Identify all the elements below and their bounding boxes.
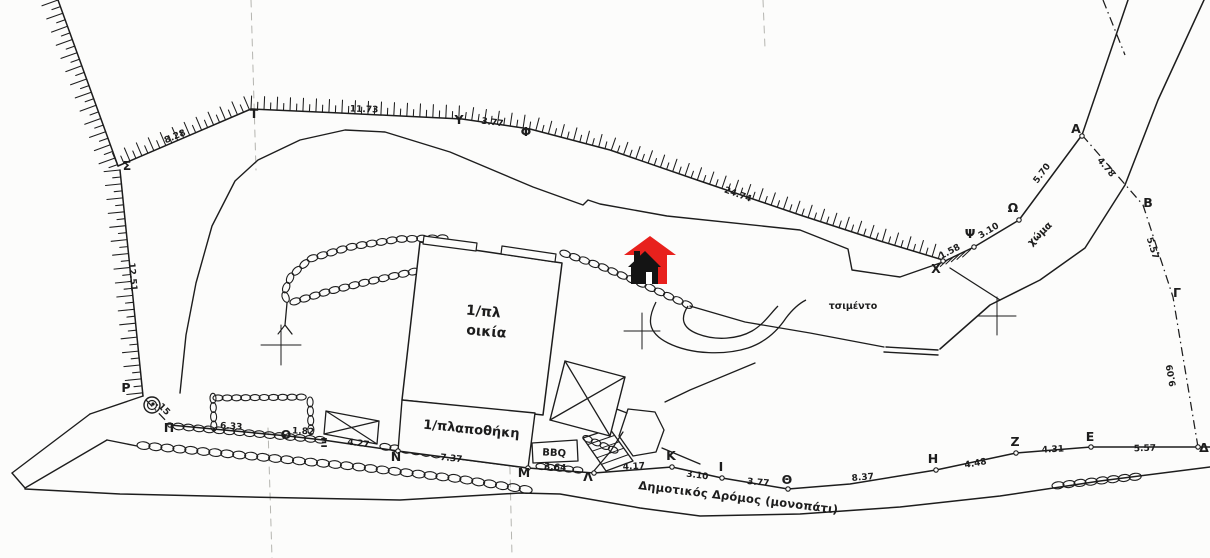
measurement-label: 4.27 xyxy=(347,438,370,451)
house-location-marker xyxy=(624,236,676,284)
measurement-label: 3.64 xyxy=(544,462,567,474)
area-label-soil: χώμα xyxy=(1025,219,1055,248)
point-label-Λ: Λ xyxy=(583,469,593,484)
point-label-Η: Η xyxy=(928,451,938,466)
plot-and-terrain-lines xyxy=(12,0,1210,516)
point-label-Σ: Σ xyxy=(123,158,132,173)
measurement-label: 1.82 xyxy=(292,426,315,437)
point-label-Φ: Φ xyxy=(521,124,532,139)
point-label-Ψ: Ψ xyxy=(965,226,976,241)
labels-layer: ΑΒΓΔΕΖΗΘΙΚΛΜΝΞΟΠΡΣΤΥΦΧΨΩ8.2811.733.7724.… xyxy=(121,105,1209,517)
point-label-Χ: Χ xyxy=(931,261,941,276)
measurement-label: 4.78 xyxy=(1095,156,1117,179)
point-label-Θ: Θ xyxy=(782,472,793,487)
point-label-Ξ: Ξ xyxy=(320,435,328,450)
point-label-Ρ: Ρ xyxy=(121,380,130,395)
building-label-storage-storeys: 1/πλ xyxy=(423,418,456,436)
road-name-label: Δημοτικός Δρόμος (μονοπάτι) xyxy=(638,478,839,516)
point-label-Ν: Ν xyxy=(391,449,401,464)
measurement-label: 6.33 xyxy=(220,421,243,433)
measurement-label: 3.77 xyxy=(481,117,504,130)
point-label-Π: Π xyxy=(164,420,174,435)
dash-dot-property-boundary xyxy=(146,0,1198,447)
point-label-Τ: Τ xyxy=(250,106,259,121)
point-label-Γ: Γ xyxy=(1173,285,1181,300)
point-label-Ω: Ω xyxy=(1008,200,1019,215)
point-label-Μ: Μ xyxy=(518,465,530,480)
measurement-label: 4.31 xyxy=(1042,444,1065,455)
measurement-label: 4.48 xyxy=(964,457,988,471)
point-label-Ζ: Ζ xyxy=(1010,434,1019,449)
measurement-label: 12.51 xyxy=(126,262,138,291)
marker-house-door xyxy=(646,272,652,284)
point-label-Δ: Δ xyxy=(1199,440,1209,455)
building-label-bbq: BBQ xyxy=(542,447,566,459)
measurement-label: 7.37 xyxy=(440,453,463,465)
point-label-Ο: Ο xyxy=(281,427,292,442)
measurement-label: 3.10 xyxy=(686,470,709,483)
building-label-house-storeys: 1/πλ xyxy=(465,303,501,322)
measurement-label: 5.57 xyxy=(1144,236,1160,260)
area-label-cement: τσιμέντο xyxy=(829,301,878,312)
point-label-Α: Α xyxy=(1071,121,1081,136)
scanned-survey-plan-page: ΑΒΓΔΕΖΗΘΙΚΛΜΝΞΟΠΡΣΤΥΦΧΨΩ8.2811.733.7724.… xyxy=(0,0,1210,558)
point-label-Κ: Κ xyxy=(666,448,677,463)
point-label-Υ: Υ xyxy=(453,112,464,127)
measurement-label: 11.73 xyxy=(350,105,379,116)
measurement-label: 5.57 xyxy=(1134,444,1157,455)
measurement-label: 8.28 xyxy=(163,128,187,146)
measurement-label: 4.17 xyxy=(623,461,646,472)
measurement-label: 9.09 xyxy=(1165,364,1179,388)
measurement-label: 3.77 xyxy=(747,477,770,489)
point-label-Ι: Ι xyxy=(719,459,724,474)
survey-plan-drawing: ΑΒΓΔΕΖΗΘΙΚΛΜΝΞΟΠΡΣΤΥΦΧΨΩ8.2811.733.7724.… xyxy=(0,0,1210,558)
point-label-Ε: Ε xyxy=(1086,429,1095,444)
measurement-label: 5.70 xyxy=(1032,162,1053,186)
measurement-label: 24.74 xyxy=(723,186,753,205)
measurement-label: 8.37 xyxy=(851,472,874,484)
point-label-Β: Β xyxy=(1143,195,1153,210)
